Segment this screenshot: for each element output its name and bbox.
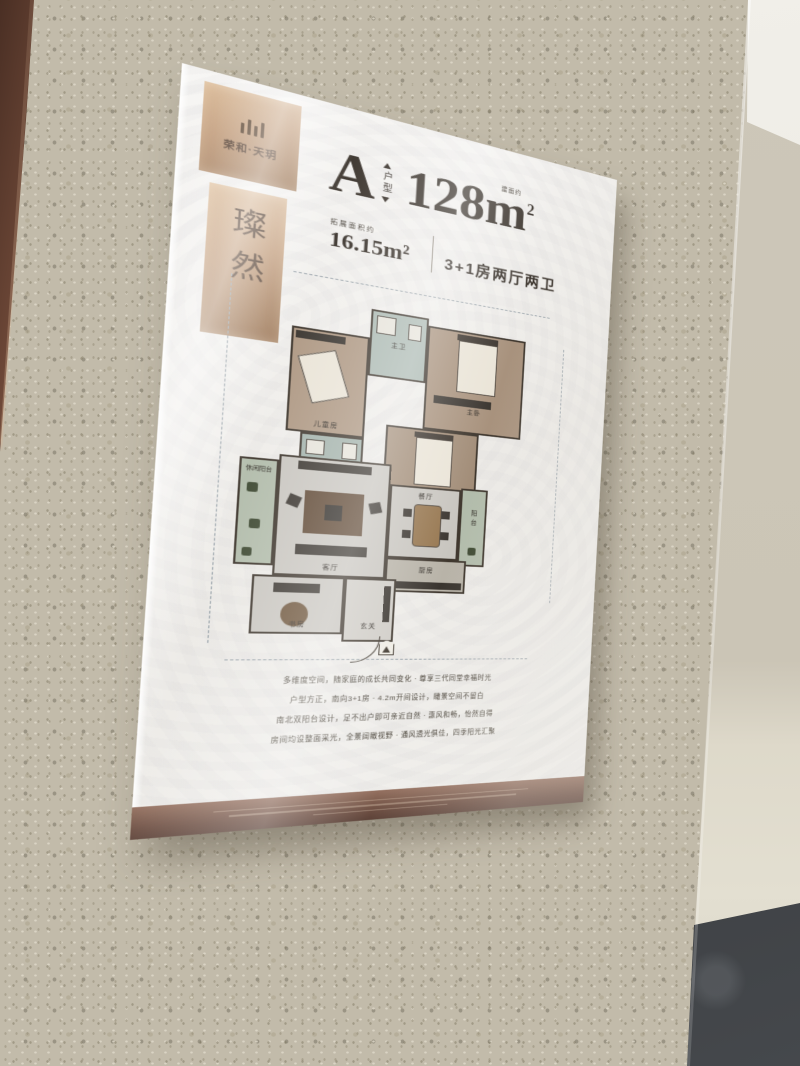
armchair-graphic bbox=[285, 493, 302, 508]
sofa-graphic bbox=[295, 544, 367, 558]
door-frame bbox=[0, 0, 40, 470]
room-label: 儿童房 bbox=[288, 416, 363, 433]
plant-graphic bbox=[246, 482, 258, 492]
room-leisure-balcony: 休闲阳台 bbox=[233, 456, 279, 565]
triangle-down-icon bbox=[381, 196, 389, 203]
chair-graphic bbox=[402, 530, 411, 538]
vertical-divider bbox=[431, 236, 434, 273]
room-master-bedroom: 主卧 bbox=[422, 326, 525, 440]
room-label: 阳台 bbox=[468, 510, 478, 529]
footer-band bbox=[130, 776, 584, 840]
area-superscript: 2 bbox=[526, 201, 534, 220]
room-label: 休闲阳台 bbox=[241, 462, 277, 474]
description-line: 房间均设整面采光，全景阔瞰视野 · 通风透光俱佳，四季阳光汇聚 bbox=[252, 727, 509, 747]
room-dining: 餐厅 bbox=[386, 484, 461, 561]
brand-logo-icon bbox=[240, 116, 264, 139]
poster-sheet-edge bbox=[130, 63, 190, 840]
plant-graphic bbox=[241, 547, 252, 556]
room-label: 书房 bbox=[251, 619, 341, 630]
bed-graphic bbox=[298, 350, 350, 403]
toilet-graphic bbox=[408, 324, 422, 342]
shoe-cabinet-graphic bbox=[382, 586, 391, 622]
plant-graphic bbox=[467, 548, 475, 556]
triangle-up-icon bbox=[383, 162, 391, 169]
description-line: 多维度空间，随家庭的成长共同变化 · 尊享三代同堂幸福时光 bbox=[256, 674, 513, 687]
chair-graphic bbox=[403, 508, 412, 517]
bed-graphic bbox=[413, 437, 453, 488]
description-line: 南北双阳台设计，足不出户即可亲近自然 · 惠风和畅，怡然自得 bbox=[254, 709, 511, 727]
room-master-bath: 主卫 bbox=[368, 309, 429, 383]
unit-letter: A bbox=[328, 142, 378, 208]
description-block: 多维度空间，随家庭的成长共同变化 · 尊享三代同堂幸福时光 户型方正，南向3+1… bbox=[252, 674, 513, 758]
dimension-line-right bbox=[549, 350, 564, 603]
chair-graphic bbox=[440, 532, 449, 540]
room-foyer: 玄关 bbox=[341, 578, 396, 642]
dimension-line-bottom bbox=[224, 658, 527, 660]
room-balcony: 阳台 bbox=[457, 488, 488, 567]
room-study: 书房 bbox=[248, 574, 345, 634]
armchair-graphic bbox=[368, 502, 382, 515]
extra-area-block: 拓展面积约 16.15m² bbox=[329, 217, 421, 268]
shower-graphic bbox=[376, 315, 396, 336]
room-label: 玄关 bbox=[344, 621, 392, 631]
room-label: 客厅 bbox=[274, 561, 383, 575]
area-value: 128m bbox=[404, 161, 528, 239]
toilet-graphic bbox=[341, 442, 357, 460]
brand-logo-text: 荣和·天玥 bbox=[223, 136, 277, 163]
dining-table-graphic bbox=[412, 504, 442, 548]
entry-marker-icon bbox=[378, 640, 394, 655]
description-line: 户型方正，南向3+1房 · 4.2m开间设计，瞰景空间不留白 bbox=[255, 691, 512, 706]
floorplan-poster: 荣和·天玥 璨然 A 户型 128m 建面约 2 拓展面积约 16.15m² bbox=[130, 63, 617, 840]
counter-graphic bbox=[388, 581, 461, 590]
tv-cabinet-graphic bbox=[298, 460, 372, 475]
coffee-table-graphic bbox=[324, 505, 342, 522]
room-living: 客厅 bbox=[272, 454, 392, 579]
unit-label-column: 户型 bbox=[378, 161, 395, 203]
disclaimer-line bbox=[229, 794, 517, 817]
sink-graphic bbox=[305, 439, 325, 456]
desk-graphic bbox=[273, 582, 320, 593]
floorplan-diagram: 主卫 主卧 儿童房 卫生间 老人房 bbox=[225, 269, 558, 653]
disclaimer-line bbox=[313, 804, 447, 816]
chair-graphic bbox=[441, 511, 450, 519]
wardrobe-graphic bbox=[296, 330, 346, 345]
room-children: 儿童房 bbox=[285, 325, 369, 438]
layout-text: 3+1房两厅两卫 bbox=[444, 251, 557, 295]
bed-graphic bbox=[456, 340, 498, 397]
room-label: 厨房 bbox=[387, 565, 464, 577]
brand-logo-box: 荣和·天玥 bbox=[199, 81, 302, 192]
room-label: 餐厅 bbox=[392, 490, 460, 504]
room-kitchen: 厨房 bbox=[384, 557, 466, 593]
plant-graphic bbox=[249, 518, 261, 528]
area-figure: 128m 建面约 2 bbox=[404, 161, 535, 241]
photo-scene: 荣和·天玥 璨然 A 户型 128m 建面约 2 拓展面积约 16.15m² bbox=[0, 0, 800, 1066]
unit-label: 户型 bbox=[378, 169, 394, 196]
